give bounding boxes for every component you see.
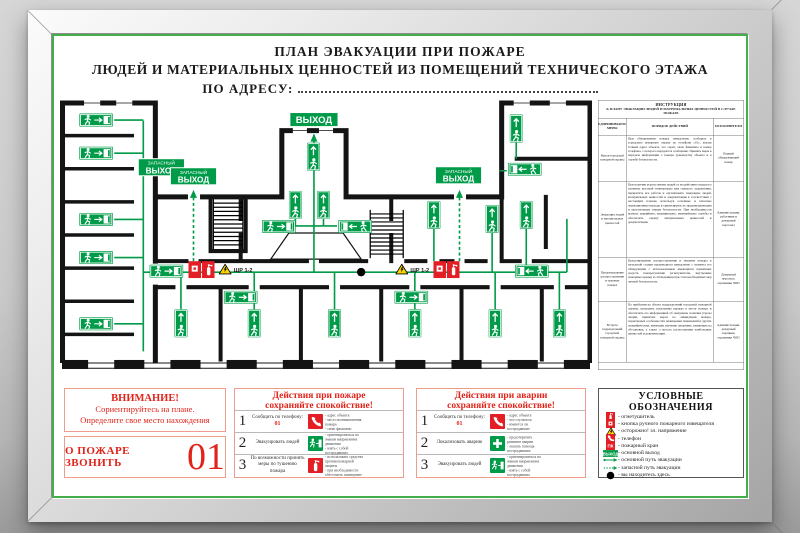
evacuation-sign-vertical	[174, 309, 187, 337]
title-line-1: ПЛАН ЭВАКУАЦИИ ПРИ ПОЖАРЕ	[54, 44, 746, 60]
step-action: По возможности принять меры по тушению п…	[250, 456, 304, 474]
action-row: 3 Эвакуировать людей ориентироваться по …	[417, 454, 585, 476]
table-cell-action: Предотвращение распространения и тушение…	[627, 257, 714, 301]
phone-icon	[487, 414, 507, 429]
step-bullet: взять с собой пострадавших	[507, 468, 546, 477]
instruction-table: ИНСТРУКЦИЯ К ПЛАНУ ЭВАКУАЦИИ ЛЮДЕЙ И МАТ…	[598, 100, 744, 370]
table-cell-action: По прибытии на объект подразделений горо…	[627, 301, 714, 362]
attention-title: ВНИМАНИЕ!	[65, 393, 225, 404]
step-number: 2	[235, 435, 250, 452]
step-action: Локализовать аварию	[437, 440, 483, 445]
action-row: 2 Эвакуировать людей ориентироваться по …	[235, 432, 403, 454]
main-exit-label-text: ВЫХОД	[296, 115, 333, 126]
extinguisher-icon	[305, 458, 325, 473]
col-header-executors: ИСПОЛНИТЕЛИ	[714, 118, 744, 135]
photo-background: ПЛАН ЭВАКУАЦИИ ПРИ ПОЖАРЕ ЛЮДЕЙ И МАТЕРИ…	[0, 0, 800, 533]
evacuation-sign-vertical	[520, 201, 533, 229]
evacuation-sign-horizontal	[79, 213, 113, 226]
address-dotted-line	[298, 81, 598, 93]
svg-text:ВЫХОД: ВЫХОД	[443, 175, 475, 184]
step-number: 3	[235, 457, 250, 474]
electrical-panel-label: ЩР 1-2	[234, 268, 253, 274]
evacuation-sign-horizontal	[224, 291, 258, 304]
step-bullet: место возникновения пожара	[325, 417, 364, 426]
svg-text:ВЫХОД: ВЫХОД	[178, 176, 210, 185]
fire-call-number: 01	[187, 439, 225, 475]
main-exit-sign: ВЫХОД	[290, 113, 338, 127]
accident-actions-title: Действия при аварии сохраняйте спокойств…	[417, 389, 585, 410]
electric-hazard-icon	[219, 264, 231, 274]
step-bullet: что случилось	[507, 417, 546, 422]
table-cell-measure: Вызов городской пожарной охраны	[599, 135, 627, 181]
hall-stage-outline	[271, 233, 361, 259]
poster-title: ПЛАН ЭВАКУАЦИИ ПРИ ПОЖАРЕ ЛЮДЕЙ И МАТЕРИ…	[54, 44, 746, 97]
evacuation-sign-vertical	[427, 201, 440, 229]
legend-item: кнопка ручного пожарного извещателя	[603, 420, 739, 427]
main-exit-icon: ВЫХОД	[603, 450, 618, 457]
electric-hazard-icon	[396, 264, 408, 274]
legend-item: осторожно! эл. напряжение	[603, 428, 739, 435]
fire-call-box: О ПОЖАРЕ ЗВОНИТЬ 01	[64, 436, 226, 478]
col-header-actions: ПОРЯДОК ДЕЙСТВИЙ	[627, 118, 714, 135]
evacuation-sign-vertical	[553, 309, 566, 337]
action-row: 1 Сообщить по телефону:01 адрес объекта …	[417, 410, 585, 432]
frame-corner	[27, 496, 53, 522]
evacuation-sign-horizontal	[79, 317, 113, 330]
step-action: Сообщить по телефону:	[434, 415, 485, 420]
legend-item: огнетушитель	[603, 413, 739, 420]
svg-text:ВЫХОД: ВЫХОД	[603, 451, 618, 456]
step-number: 3	[417, 457, 432, 474]
fire-equipment-icon	[188, 261, 214, 278]
table-cell-executor: Администрация, работники и дежурный перс…	[714, 181, 744, 257]
legend-panel: УСЛОВНЫЕ ОБОЗНАЧЕНИЯ огнетушитель кнопка…	[598, 388, 744, 478]
frame-corner	[27, 10, 53, 36]
evacuation-sign-horizontal-mirrored	[338, 220, 372, 233]
legend-item: основной путь эвакуации	[603, 457, 739, 464]
table-subheader: К ПЛАНУ ЭВАКУАЦИИ ЛЮДЕЙ И МАТЕРИАЛЬНЫХ Ц…	[599, 107, 744, 118]
fire-actions-title: Действия при пожаре сохраняйте спокойств…	[235, 389, 403, 410]
table-cell-action: При наличии угрозы жизни людей от воздей…	[627, 181, 714, 257]
you-are-here-icon	[603, 471, 618, 480]
evacuation-sign-horizontal	[79, 251, 113, 264]
evacuation-sign-vertical	[328, 309, 341, 337]
step-number: 1	[417, 413, 432, 430]
title-line-3: ПО АДРЕСУ:	[54, 81, 746, 97]
evacuation-sign-vertical	[248, 309, 261, 337]
evacuation-plan-poster: ПЛАН ЭВАКУАЦИИ ПРИ ПОЖАРЕ ЛЮДЕЙ И МАТЕРИ…	[52, 34, 748, 498]
evacuation-sign-horizontal-mirrored	[508, 163, 542, 176]
step-bullet: использовать средства противопожарной за…	[325, 455, 364, 468]
legend-title: УСЛОВНЫЕ ОБОЗНАЧЕНИЯ	[603, 391, 739, 413]
action-row: 2 Локализовать аварию предотвратить разв…	[417, 432, 585, 454]
title-line-2: ЛЮДЕЙ И МАТЕРИАЛЬНЫХ ЦЕННОСТЕЙ ИЗ ПОМЕЩЕ…	[54, 62, 746, 78]
evacuation-sign-vertical	[489, 309, 502, 337]
attention-line: Сориентируйтесь на плане.	[65, 404, 225, 415]
evacuation-sign-horizontal	[395, 291, 429, 304]
aluminium-frame: ПЛАН ЭВАКУАЦИИ ПРИ ПОЖАРЕ ЛЮДЕЙ И МАТЕРИ…	[28, 10, 772, 522]
svg-text:ПК: ПК	[608, 444, 614, 449]
step-bullet: адрес объекта	[507, 413, 546, 418]
fire-actions-panel: Действия при пожаре сохраняйте спокойств…	[234, 388, 404, 478]
step-action: Эвакуировать людей	[256, 440, 300, 445]
step-bullet: при необходимости обесточить помещение	[325, 468, 364, 477]
step-accent: 01	[432, 421, 487, 429]
action-row: 3 По возможности принять меры по тушению…	[235, 454, 403, 476]
evacuation-sign-vertical	[307, 143, 320, 171]
main-route-icon	[603, 457, 618, 463]
step-action: Сообщить по телефону:	[252, 415, 303, 420]
fire-call-label: О ПОЖАРЕ ЗВОНИТЬ	[65, 445, 181, 469]
step-bullet: ориентироваться по знакам направления дв…	[507, 455, 546, 468]
table-cell-executor: Дежурный персонал, охранники ЧОП	[714, 257, 744, 301]
legend-item: ВЫХОД основной выход	[603, 449, 739, 456]
exit-runner-icon	[305, 436, 325, 451]
evacuation-sign-horizontal	[150, 265, 184, 278]
emergency-exit-sign: ЗАПАСНЫЙ ВЫХОД	[435, 167, 481, 184]
table-cell-executor: Первый обнаруживший пожар	[714, 135, 744, 181]
table-cell-measure: Встреча подразделений городской пожарной…	[599, 301, 627, 362]
address-label: ПО АДРЕСУ:	[202, 81, 293, 96]
first-aid-cross-icon	[487, 436, 507, 451]
table-cell-executor: Администрация, дежурный охранник, охранн…	[714, 301, 744, 362]
step-number: 1	[235, 413, 250, 430]
evacuation-sign-horizontal	[79, 147, 113, 160]
evacuation-sign-vertical	[510, 115, 523, 143]
legend-item: вы находитесь здесь	[603, 471, 739, 478]
step-bullet: свою фамилию	[325, 426, 364, 431]
step-bullet: предотвратить развитие аварии	[507, 435, 546, 444]
staircase	[213, 199, 242, 249]
evacuation-sign-horizontal	[79, 114, 113, 127]
evacuation-sign-horizontal	[262, 220, 296, 233]
exit-runner-icon	[487, 458, 507, 473]
you-are-here-marker	[357, 268, 365, 276]
step-bullet: взять с собой пострадавших	[325, 446, 364, 455]
attention-line: Определите свое место нахождения	[65, 415, 225, 426]
emergency-exit-sign: ЗАПАСНЫЙ ВЫХОД	[170, 168, 216, 185]
frame-corner	[771, 522, 797, 533]
staircase	[370, 210, 403, 258]
floor-plan: ЩР 1-2 ЩР 1-2 ВЫХОД ЗАПАСНЫЙ ВЫХОД ЗАПАС…	[60, 100, 592, 372]
action-row: 1 Сообщить по телефону:01 адрес объекта …	[235, 410, 403, 432]
fire-equipment-icon	[433, 261, 459, 278]
step-bullet: оказать помощь пострадавшим	[507, 444, 546, 453]
frame-corner	[771, 0, 797, 10]
legend-item: ПК пожарный кран	[603, 442, 739, 449]
evacuation-sign-horizontal-mirrored	[515, 265, 549, 278]
attention-box: ВНИМАНИЕ! Сориентируйтесь на плане. Опре…	[64, 388, 226, 432]
table-cell-measure: Предотвращение распространения и тушение…	[599, 257, 627, 301]
accident-actions-panel: Действия при аварии сохраняйте спокойств…	[416, 388, 586, 478]
legend-item: телефон	[603, 435, 739, 442]
evacuation-sign-vertical	[486, 205, 499, 233]
step-bullet: адрес объекта	[325, 413, 364, 418]
legend-item: запасной путь эвакуации	[603, 464, 739, 471]
table-cell-action: При обнаружении пожара немедленно сообщи…	[627, 135, 714, 181]
bottom-wall	[62, 360, 590, 369]
evacuation-sign-vertical	[289, 191, 302, 219]
evacuation-sign-vertical	[408, 309, 421, 337]
instruction-table-wrap: ИНСТРУКЦИЯ К ПЛАНУ ЭВАКУАЦИИ ЛЮДЕЙ И МАТ…	[598, 100, 746, 372]
phone-icon	[305, 414, 325, 429]
table-cell-measure: Эвакуация людей и материальных ценностей	[599, 181, 627, 257]
step-action: Эвакуировать людей	[438, 462, 482, 467]
col-header-measures: ПРЕДПРИНИМАЕМЫЕ МЕРЫ	[599, 118, 627, 135]
step-number: 2	[417, 435, 432, 452]
step-bullet: ориентироваться по знакам направления дв…	[325, 433, 364, 446]
step-bullet: имеются ли пострадавшие	[507, 422, 546, 431]
step-accent: 01	[250, 421, 305, 429]
electrical-panel-label: ЩР 1-2	[410, 268, 429, 274]
evacuation-sign-vertical	[317, 191, 330, 219]
